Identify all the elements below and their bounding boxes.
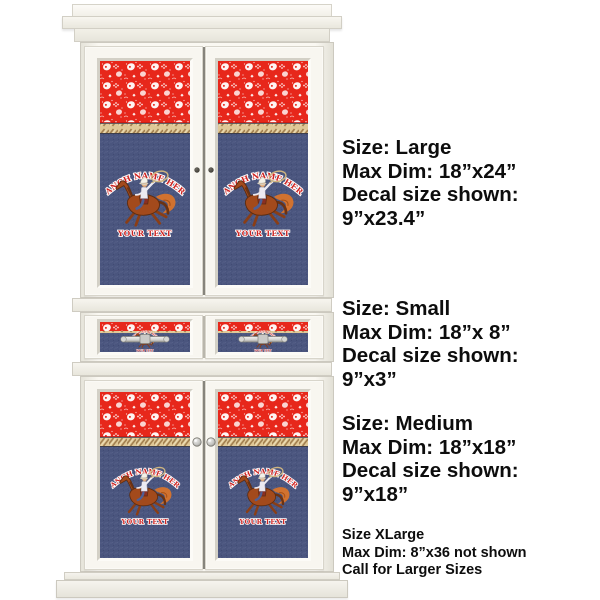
decal-shown: Decal size shown: [342, 459, 519, 483]
decal-shown: Decal size shown: [342, 344, 519, 368]
cabinet-mid-rail [72, 298, 332, 312]
size-note-xlarge: Size XLarge Max Dim: 8”x36 not shown Cal… [342, 527, 527, 580]
lower-right-door-panel [215, 389, 311, 561]
note-line: Call for Larger Sizes [342, 562, 527, 580]
size-block-large: Size: Large Max Dim: 18”x24” Decal size … [342, 136, 519, 230]
size-label: Size: Medium [342, 412, 519, 436]
max-dim: Max Dim: 18”x 8” [342, 321, 519, 345]
size-label: Size: Large [342, 136, 519, 160]
product-image: Ranch Name Here [0, 0, 600, 600]
upper-door-gap [203, 47, 205, 295]
max-dim: Max Dim: 18”x24” [342, 160, 519, 184]
decal-shown: Decal size shown: [342, 183, 519, 207]
size-block-medium: Size: Medium Max Dim: 18”x18” Decal size… [342, 412, 519, 506]
cabinet-mid-rail-lower [72, 362, 332, 376]
upper-left-door-panel [97, 58, 193, 288]
drawer-gap [203, 316, 205, 358]
lower-door-gap [203, 381, 205, 569]
size-panel: Size: Large Max Dim: 18”x24” Decal size … [342, 0, 598, 600]
decal-size: 9”x23.4” [342, 207, 519, 231]
size-block-small: Size: Small Max Dim: 18”x 8” Decal size … [342, 297, 519, 391]
cabinet-base-plinth [56, 580, 348, 598]
max-dim: Max Dim: 18”x18” [342, 436, 519, 460]
cabinet-base-step [64, 572, 340, 580]
left-drawer-panel [97, 319, 193, 355]
cabinet-crown-base [74, 29, 330, 42]
upper-right-door-panel [215, 58, 311, 288]
note-line: Size XLarge [342, 527, 527, 545]
right-drawer-panel [215, 319, 311, 355]
note-line: Max Dim: 8”x36 not shown [342, 545, 527, 563]
decal-size: 9”x3” [342, 368, 519, 392]
cabinet-crown-cornice [62, 16, 342, 29]
lower-left-door-panel [97, 389, 193, 561]
decal-size: 9”x18” [342, 483, 519, 507]
size-label: Size: Small [342, 297, 519, 321]
